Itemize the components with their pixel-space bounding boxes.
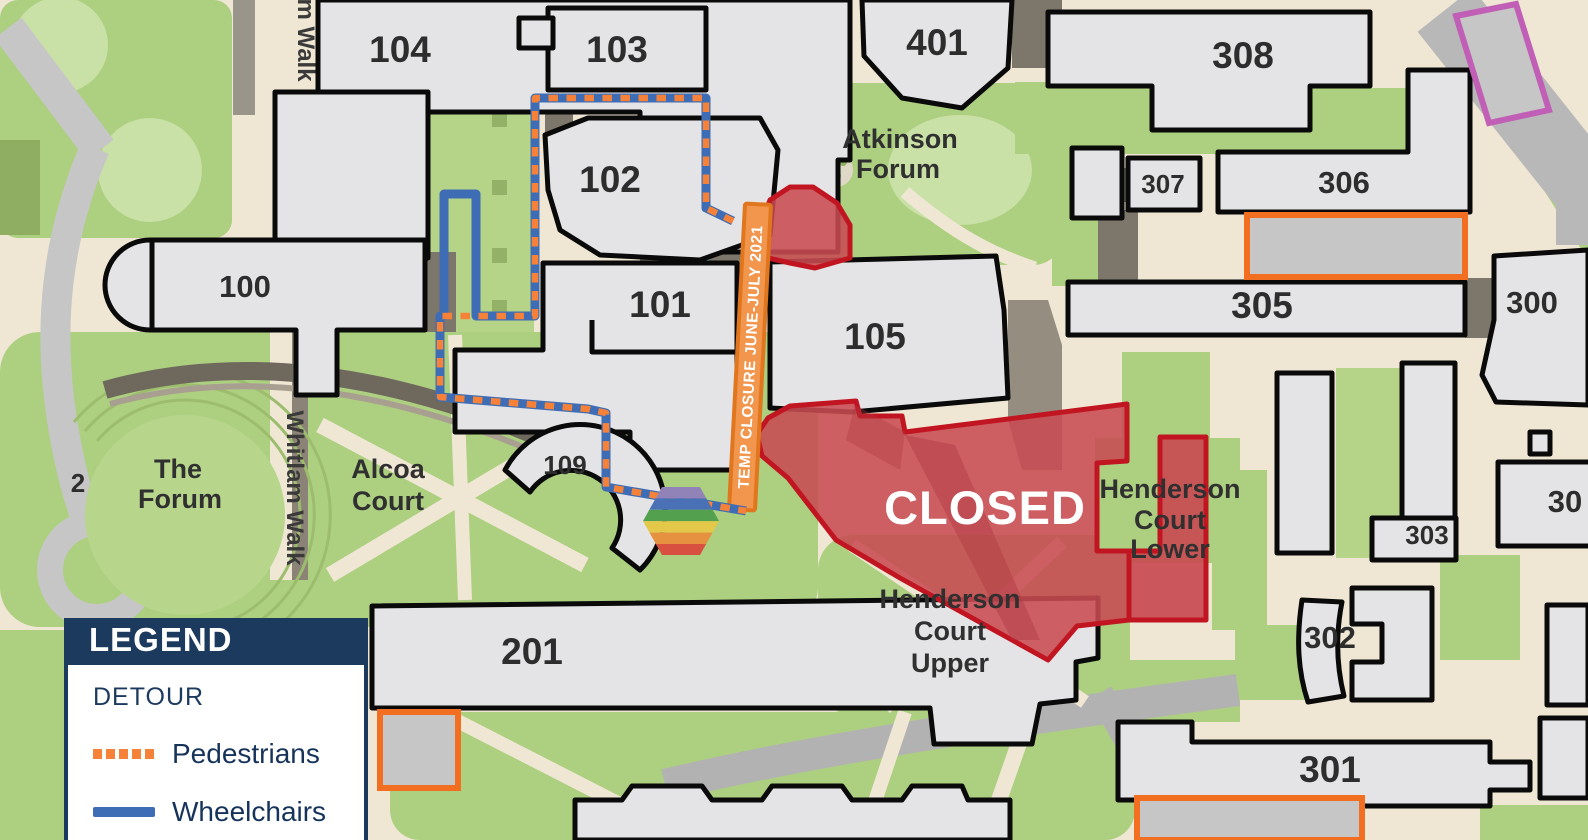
closed-label: CLOSED <box>884 481 1086 534</box>
building-104-west-wing <box>275 92 428 258</box>
building-307-west <box>1072 148 1122 218</box>
building-303-west-slab <box>1277 373 1332 553</box>
legend-item-wheelchairs: Wheelchairs <box>93 796 356 828</box>
legend-item-label-wheelchairs: Wheelchairs <box>172 796 326 828</box>
atkinson-forum-label-line1: Atkinson <box>842 124 958 154</box>
parking-201 <box>380 712 458 788</box>
building-label-105: 105 <box>844 316 906 357</box>
legend-item-label-pedestrians: Pedestrians <box>172 738 320 770</box>
legend-section-detour: DETOUR <box>93 683 356 712</box>
building-label-308: 308 <box>1212 35 1274 76</box>
henderson-upper-label-line3: Upper <box>911 648 990 678</box>
building-label-100: 100 <box>219 269 271 304</box>
legend-title: LEGEND <box>64 618 368 665</box>
henderson-upper-label-line1: Henderson <box>879 584 1020 614</box>
building-label-103: 103 <box>586 29 648 70</box>
wheelchair-route-swatch <box>93 807 155 817</box>
the-forum-label-line1: The <box>154 454 202 484</box>
parking-301 <box>1137 798 1362 840</box>
building-bottom-center <box>575 786 1010 840</box>
building-label-109: 109 <box>543 450 586 480</box>
henderson-lower-label-line1: Henderson <box>1099 474 1240 504</box>
building-label-102: 102 <box>579 159 641 200</box>
alcoa-court-label-line2: Court <box>352 486 424 516</box>
parking-306 <box>1247 215 1465 277</box>
building-label-303: 303 <box>1405 520 1448 550</box>
whitlam-walk-partial-label: m Walk <box>292 0 319 82</box>
building-label-201: 201 <box>501 631 563 672</box>
building-label-306: 306 <box>1318 165 1370 200</box>
building-label-101: 101 <box>629 284 691 325</box>
henderson-lower-label-line3: Lower <box>1130 534 1210 564</box>
building-label-401: 401 <box>906 22 968 63</box>
building-label-301: 301 <box>1299 749 1361 790</box>
building-label-307: 307 <box>1141 169 1184 199</box>
building-label-305: 305 <box>1231 285 1293 326</box>
henderson-upper-label-line2: Court <box>914 616 986 646</box>
atkinson-forum-label-line2: Forum <box>856 154 940 184</box>
building-300-shape <box>1482 250 1588 405</box>
building-label-302: 302 <box>1304 620 1356 655</box>
whitlam-walk-label: Whitlam Walk <box>281 410 308 566</box>
forum-lawn <box>85 415 285 615</box>
building-label-104: 104 <box>369 29 431 70</box>
alcoa-court-label-line1: Alcoa <box>351 454 426 484</box>
building-label-304-partial: 30 <box>1548 484 1582 519</box>
map-legend: LEGEND DETOUR Pedestrians Wheelchairs <box>64 618 368 840</box>
building-right-edge-lower <box>1540 718 1588 798</box>
campus-map: TEMP CLOSURE JUNE-JULY 2021 104 103 401 … <box>0 0 1588 840</box>
henderson-lower-label-line2: Court <box>1134 505 1206 535</box>
the-forum-label-line2: Forum <box>138 484 222 514</box>
pedestrian-route-swatch <box>93 749 155 759</box>
building-label-300: 300 <box>1506 285 1558 320</box>
walk-north-path <box>233 0 255 115</box>
building-right-edge-upper <box>1547 605 1588 705</box>
legend-item-pedestrians: Pedestrians <box>93 738 356 770</box>
legend-body: DETOUR Pedestrians Wheelchairs <box>64 665 368 840</box>
small-building <box>519 18 553 48</box>
road-number-label: 2 <box>71 468 85 498</box>
